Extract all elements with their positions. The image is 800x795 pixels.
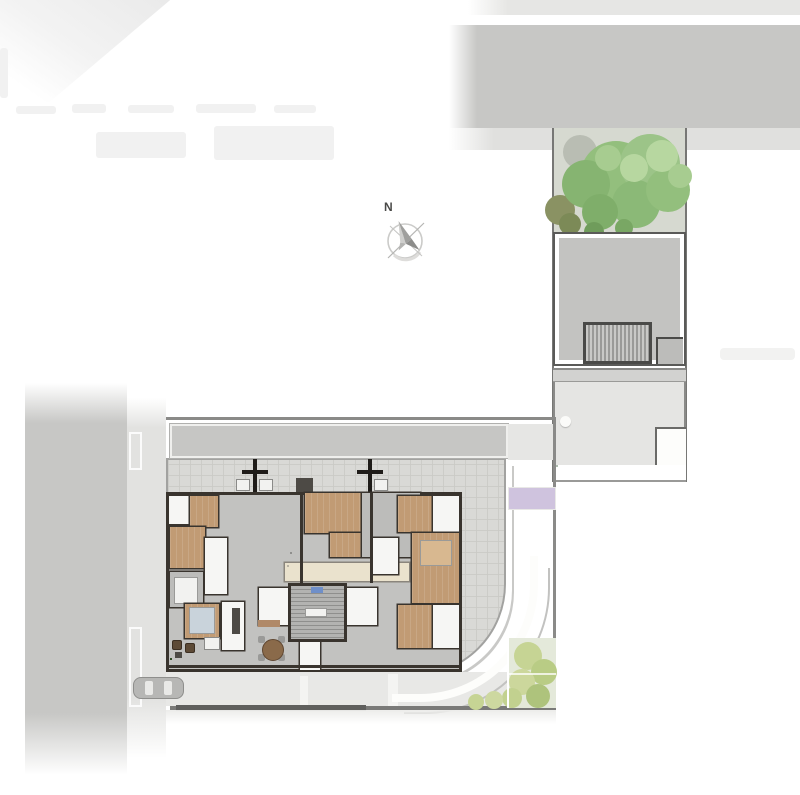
faded-block: [96, 132, 186, 158]
car-icon: [133, 677, 184, 699]
shelf-items: [232, 608, 240, 634]
parking-corner: [508, 424, 553, 460]
car-windshield: [145, 681, 153, 695]
bedroom: [170, 527, 205, 568]
car-rear-window: [164, 681, 172, 695]
parking-lane: [170, 424, 508, 458]
courtyard-dot: [560, 416, 571, 427]
faded-mark: [72, 104, 106, 113]
street-top: [449, 25, 800, 128]
south-wall: [169, 665, 459, 668]
faded-mark: [128, 105, 174, 113]
bedroom: [190, 496, 218, 527]
console-table: [258, 620, 280, 627]
pergola-column: [253, 459, 257, 493]
planter-box: [556, 465, 558, 467]
faded-mark: [196, 104, 256, 113]
courtyard-notch: [655, 427, 686, 466]
sidewalk-bottom: [166, 710, 556, 724]
bathroom: [433, 496, 459, 533]
bedroom: [398, 496, 433, 532]
roof-box: [296, 478, 313, 493]
garden-bushes: [424, 638, 556, 708]
pergola-column: [368, 459, 372, 493]
round-table: [262, 639, 284, 661]
bathroom: [372, 538, 398, 574]
stair-label-box: [305, 608, 327, 617]
sidewalk-notch: [129, 432, 142, 470]
compass: N: [368, 196, 442, 268]
appliance: [290, 552, 292, 554]
block-walk-strip: [553, 368, 686, 382]
party-wall: [300, 493, 303, 583]
street-top-edge: [468, 0, 800, 15]
faded-edge: [0, 48, 8, 98]
planter-box: [170, 658, 172, 660]
drive-joint: [300, 676, 308, 706]
site-boundary-top: [166, 417, 556, 420]
pergola-beam: [357, 470, 383, 474]
bathroom: [169, 496, 190, 524]
compass-rose-icon: [376, 214, 436, 268]
garden-bed-purple: [508, 487, 556, 510]
faded-mark: [16, 106, 56, 114]
site-plan: N: [0, 0, 800, 795]
party-wall: [370, 493, 373, 583]
faded-block: [214, 126, 334, 160]
ac-unit: [236, 479, 250, 491]
bed: [174, 577, 198, 604]
bedroom: [305, 493, 362, 533]
street-left: [25, 383, 127, 775]
faded-street-top-left: [0, 0, 185, 150]
side-table: [204, 637, 220, 650]
ac-unit: [259, 479, 273, 491]
bathroom-stack: [205, 538, 227, 594]
elevator: [347, 588, 377, 625]
compass-north-label: N: [384, 200, 393, 214]
armchair: [185, 643, 195, 653]
bed: [420, 540, 452, 566]
pergola-beam: [242, 470, 268, 474]
ramp-hatch: [583, 322, 652, 364]
armchair: [172, 640, 182, 650]
ramp-landing: [656, 337, 683, 364]
courtyard-planter-row: [556, 465, 686, 482]
faded-mark: [720, 348, 795, 360]
tree-canopy: [538, 122, 713, 240]
counter-module: [287, 565, 289, 567]
faded-mark: [274, 105, 316, 113]
ac-unit: [374, 479, 388, 491]
elevator-marker: [311, 587, 323, 593]
bed: [189, 607, 215, 634]
